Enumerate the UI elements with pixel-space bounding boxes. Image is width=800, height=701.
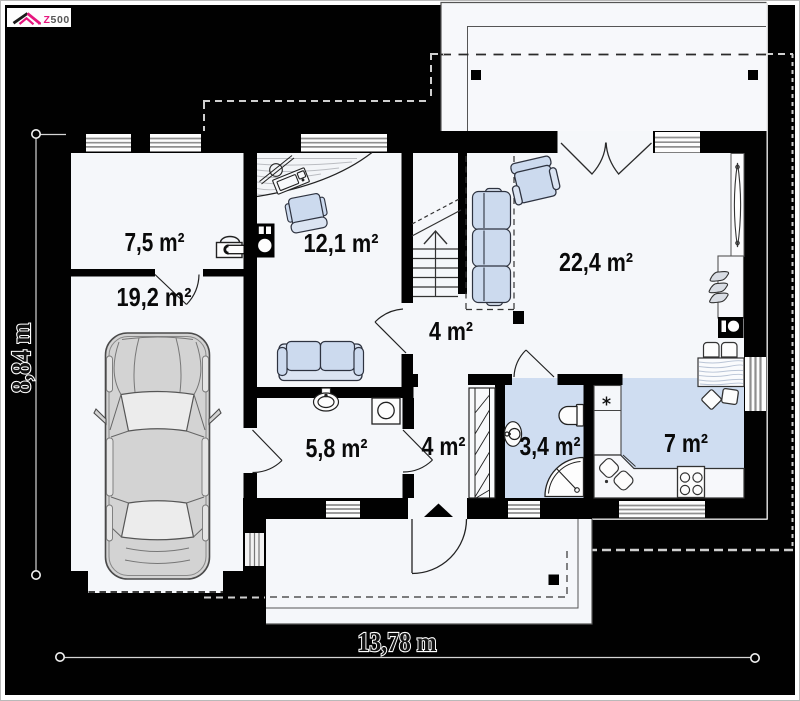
- svg-text:22,4 m²: 22,4 m²: [559, 247, 633, 277]
- svg-text:12,1 m²: 12,1 m²: [304, 228, 379, 258]
- svg-text:3,4 m²: 3,4 m²: [520, 431, 581, 461]
- svg-text:4 m²: 4 m²: [429, 316, 473, 346]
- svg-text:4 m²: 4 m²: [422, 431, 466, 461]
- svg-text:7,5 m²: 7,5 m²: [125, 227, 185, 257]
- svg-text:8,84 m: 8,84 m: [6, 323, 36, 393]
- svg-text:Z: Z: [44, 14, 51, 26]
- svg-text:19,2 m²: 19,2 m²: [117, 282, 192, 312]
- svg-text:7 m²: 7 m²: [664, 428, 708, 458]
- svg-text:5,8 m²: 5,8 m²: [306, 433, 368, 463]
- svg-text:500: 500: [51, 14, 70, 26]
- svg-text:13,78 m: 13,78 m: [358, 627, 437, 657]
